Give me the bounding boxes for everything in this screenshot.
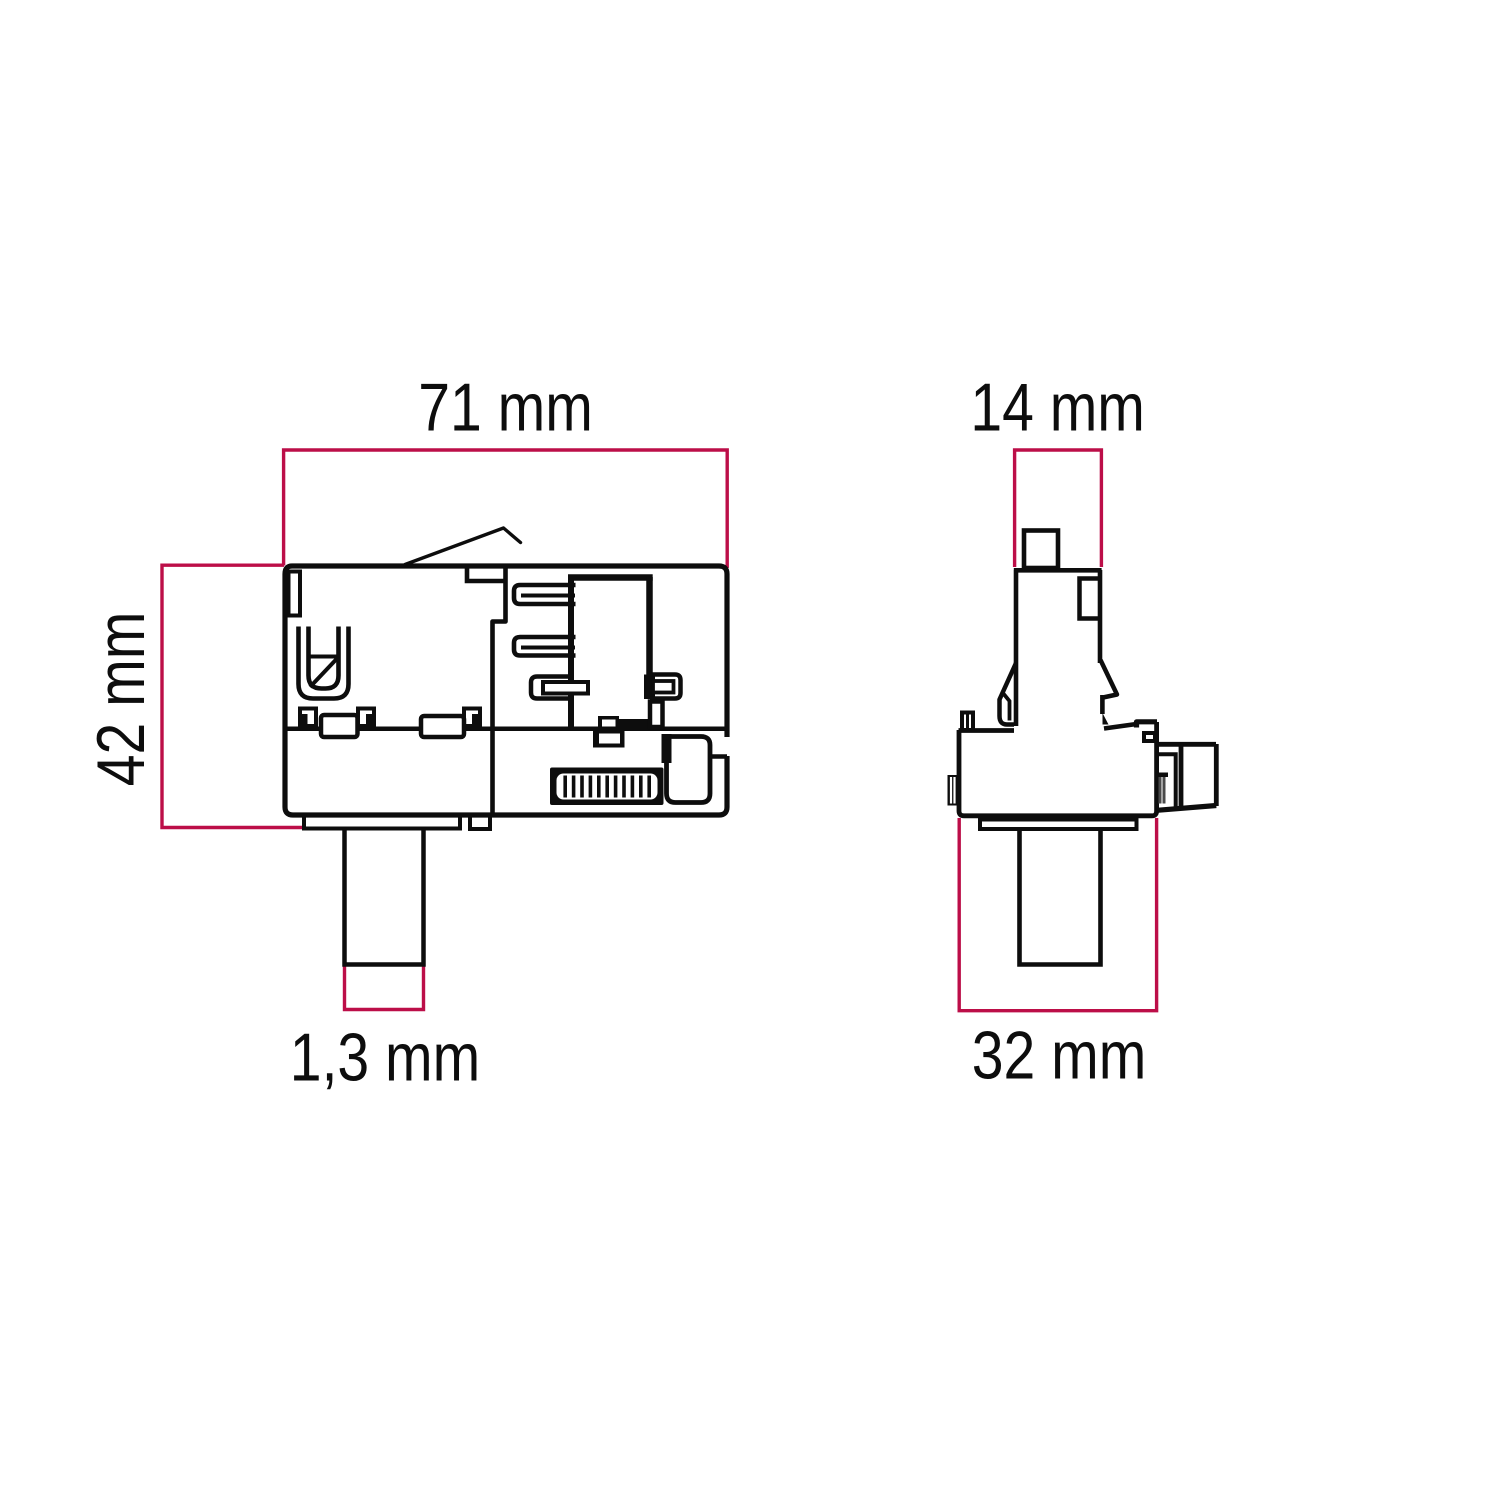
- svg-text:42 mm: 42 mm: [83, 612, 159, 787]
- svg-text:32 mm: 32 mm: [972, 1018, 1147, 1094]
- svg-text:71 mm: 71 mm: [418, 370, 593, 446]
- svg-text:1,3 mm: 1,3 mm: [290, 1020, 480, 1096]
- svg-text:14 mm: 14 mm: [970, 370, 1145, 446]
